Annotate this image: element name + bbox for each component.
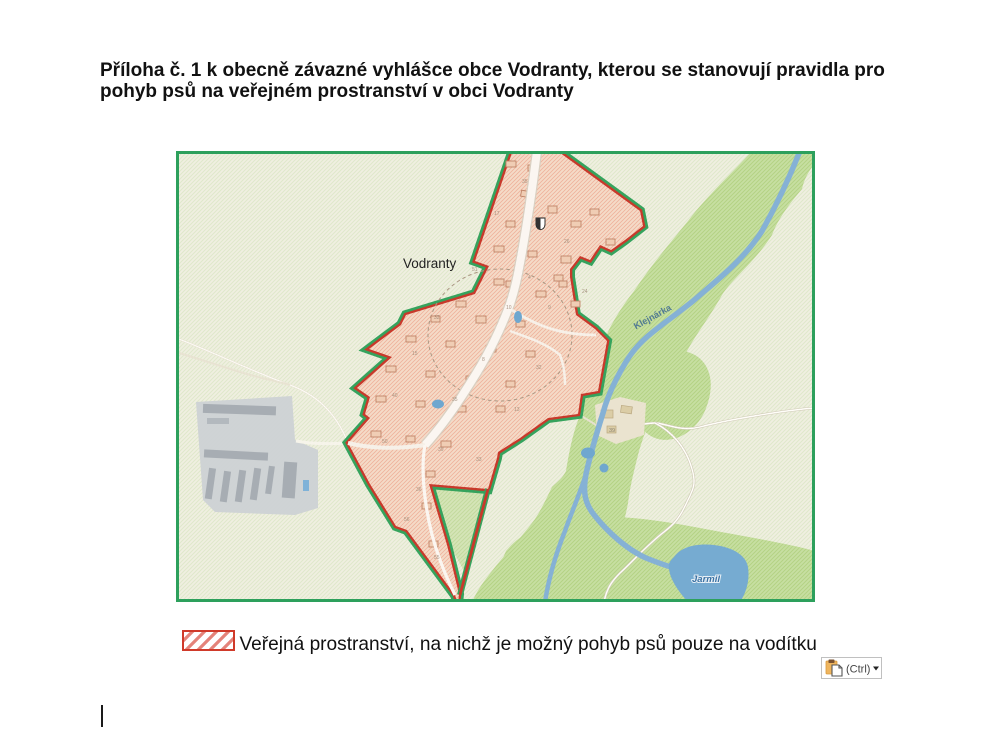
svg-text:15: 15 [412, 351, 418, 357]
svg-text:(Ctrl): (Ctrl) [846, 664, 870, 676]
svg-text:39: 39 [609, 428, 615, 434]
svg-text:24: 24 [582, 289, 588, 295]
svg-text:55: 55 [434, 555, 440, 561]
svg-text:39: 39 [438, 447, 444, 453]
svg-text:4: 4 [528, 275, 531, 281]
svg-text:33: 33 [476, 457, 482, 463]
svg-text:51: 51 [472, 267, 478, 273]
svg-text:10: 10 [506, 305, 512, 311]
svg-text:50: 50 [382, 439, 388, 445]
svg-text:Vodranty: Vodranty [403, 256, 457, 271]
svg-text:36: 36 [416, 487, 422, 493]
svg-text:8: 8 [482, 357, 485, 363]
svg-text:9: 9 [548, 305, 551, 311]
svg-text:32: 32 [434, 315, 440, 321]
svg-text:56: 56 [404, 517, 410, 523]
svg-text:Jarmil: Jarmil [692, 574, 720, 585]
svg-text:35: 35 [452, 397, 458, 403]
svg-text:13: 13 [514, 407, 520, 413]
svg-text:26: 26 [564, 239, 570, 245]
svg-text:35: 35 [522, 179, 528, 185]
svg-text:32: 32 [536, 365, 542, 371]
svg-text:17: 17 [494, 211, 500, 217]
svg-text:40: 40 [392, 393, 398, 399]
